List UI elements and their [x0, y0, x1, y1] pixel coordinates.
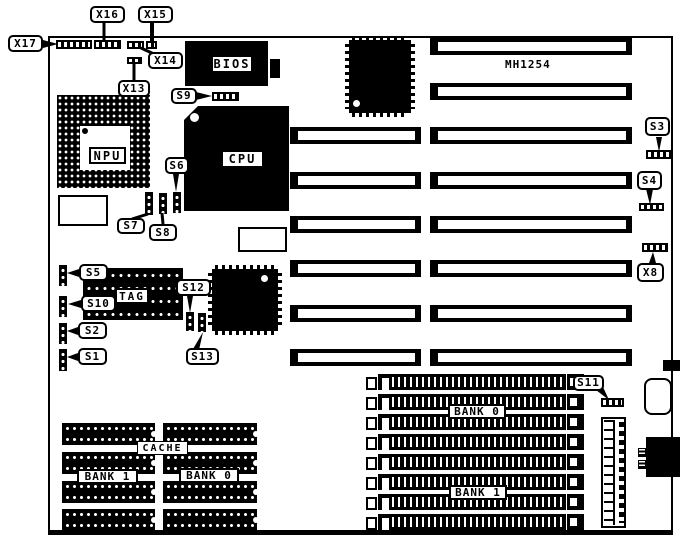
callout-s5: S5	[79, 264, 108, 281]
bios-label: BIOS	[211, 55, 253, 73]
qfp-pin1-dot	[353, 100, 360, 107]
callout-s4: S4	[637, 171, 662, 190]
jumper-s5	[59, 265, 67, 286]
callout-x14: X14	[148, 52, 183, 69]
jumper-s11	[601, 398, 624, 407]
keyboard-connector	[646, 437, 680, 477]
callout-s9: S9	[171, 88, 197, 104]
jumper-s1	[59, 349, 67, 371]
cache-chip	[163, 509, 257, 530]
simm-bank0-label: BANK 0	[448, 404, 506, 419]
callout-s2: S2	[78, 322, 107, 339]
callout-x8: X8	[637, 263, 664, 282]
npu-socket	[57, 95, 150, 188]
callout-s10: S10	[81, 295, 116, 312]
callout-s1: S1	[78, 348, 107, 365]
isa-slot	[430, 305, 632, 322]
jumper-s4	[639, 203, 664, 211]
oscillator	[238, 227, 287, 252]
qfp-pins	[352, 113, 408, 117]
board-model-text: MH1254	[505, 58, 551, 71]
power-connector-cells	[604, 420, 615, 525]
keyboard-connector-pins	[638, 460, 646, 469]
callout-x16: X16	[90, 6, 125, 23]
connector-x13	[127, 57, 142, 64]
simm-bank1-label: BANK 1	[449, 485, 507, 500]
callout-s12: S12	[176, 279, 211, 296]
qfp-pin1-dot	[261, 275, 268, 282]
oscillator	[58, 195, 108, 226]
isa-slot	[290, 172, 421, 189]
keyboard-connector-pins	[638, 448, 646, 457]
isa-slot	[430, 83, 632, 100]
callout-s8: S8	[149, 224, 177, 241]
cache-chip	[62, 481, 155, 503]
isa-slot	[430, 127, 632, 144]
npu-pin1-dot	[82, 128, 88, 134]
isa-slot	[430, 216, 632, 233]
jumper-s12	[186, 312, 194, 331]
din-connector-outline	[644, 378, 672, 415]
callout-x13: X13	[118, 80, 150, 97]
jumper-s7	[145, 192, 153, 215]
isa-slot	[290, 260, 421, 277]
qfp-pins	[215, 331, 275, 335]
jumper-s13	[198, 313, 206, 332]
jumper-s10	[59, 296, 67, 317]
qfp-chip	[349, 40, 411, 113]
isa-slot	[290, 216, 421, 233]
cache-chip	[163, 481, 257, 503]
cache-bank1-label: BANK 1	[77, 469, 138, 484]
isa-slot	[430, 349, 632, 366]
cache-bank0-label: BANK 0	[179, 468, 239, 483]
tag-label: TAG	[115, 288, 149, 304]
npu-label: NPU	[89, 147, 126, 164]
isa-slot	[290, 127, 421, 144]
isa-slot	[430, 172, 632, 189]
connector-x8	[642, 243, 668, 252]
callout-s3: S3	[645, 117, 670, 136]
simm-socket	[365, 434, 585, 450]
isa-slot	[290, 305, 421, 322]
connector-x15	[146, 41, 157, 49]
simm-socket	[365, 454, 585, 470]
qfp-pins	[411, 44, 415, 109]
simm-socket	[365, 374, 585, 390]
connector-x14	[127, 41, 144, 49]
qfp-pins	[278, 273, 282, 327]
jumper-s3	[646, 150, 671, 159]
bios-chip-tab	[270, 59, 280, 78]
callout-s11: S11	[573, 375, 604, 391]
motherboard-diagram: MH1254 NPU CPU BIOS TAG	[0, 0, 680, 539]
isa-slot	[290, 349, 421, 366]
cpu-label: CPU	[221, 150, 264, 168]
jumper-s6	[173, 192, 181, 213]
jumper-s8	[159, 193, 167, 214]
cache-label: CACHE	[137, 441, 188, 455]
edge-bracket	[663, 360, 680, 371]
connector-s9	[212, 92, 239, 101]
callout-s7: S7	[117, 218, 145, 234]
callout-x15: X15	[138, 6, 173, 23]
callout-s6: S6	[165, 157, 189, 174]
power-connector-pins	[619, 422, 624, 523]
cpu-pin1-dot	[190, 113, 199, 122]
power-connector	[601, 417, 626, 528]
isa-slot	[430, 38, 632, 55]
jumper-s2	[59, 323, 67, 344]
cache-chip	[62, 509, 155, 530]
connector-x17	[56, 40, 92, 49]
callout-s13: S13	[186, 348, 219, 365]
callout-x17: X17	[8, 35, 43, 52]
simm-socket	[365, 514, 585, 530]
qfp-chip	[212, 269, 278, 331]
connector-x16	[94, 40, 121, 49]
isa-slot	[430, 260, 632, 277]
